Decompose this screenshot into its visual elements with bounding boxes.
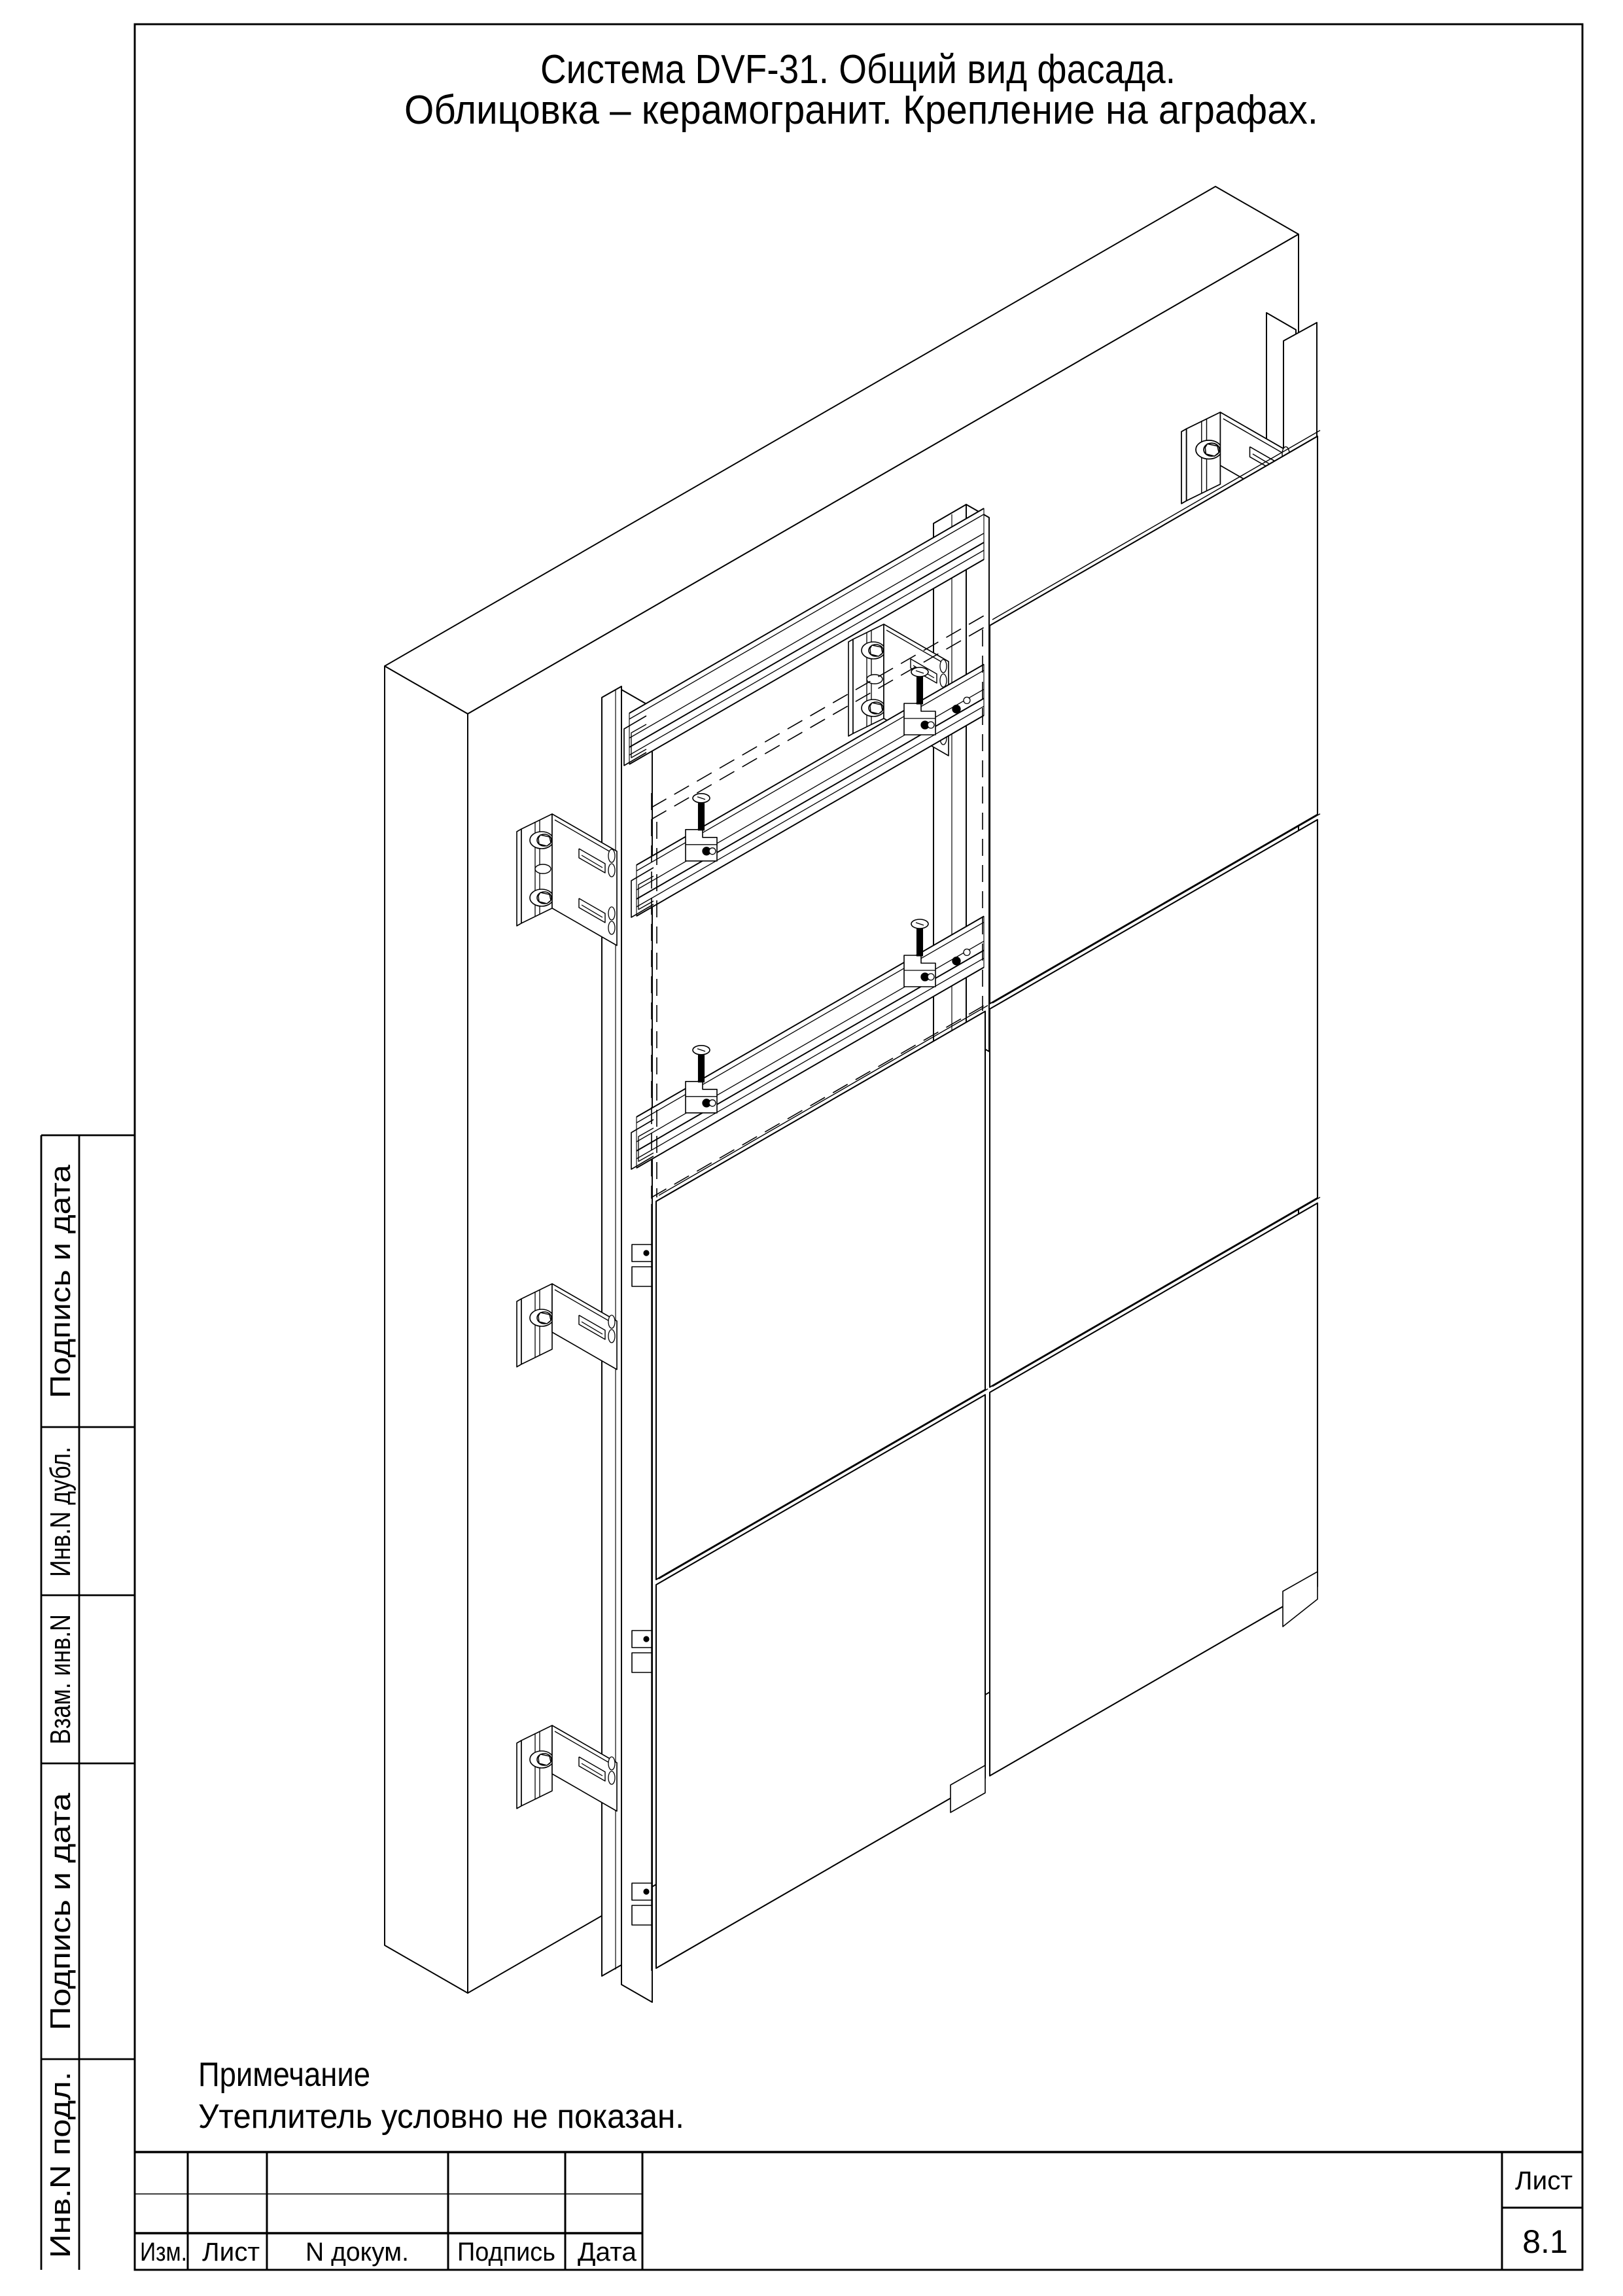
svg-text:Инв.N дубл.: Инв.N дубл. [44,1447,77,1577]
svg-text:Изм.: Изм. [140,2238,187,2267]
svg-text:Инв.N подл.: Инв.N подл. [44,2072,77,2258]
svg-text:Облицовка – керамогранит. Креп: Облицовка – керамогранит. Крепление на а… [404,88,1318,133]
svg-text:Лист: Лист [202,2238,260,2267]
svg-text:Утеплитель условно не показан.: Утеплитель условно не показан. [198,2098,684,2136]
svg-text:Система DVF-31. Общий вид фаса: Система DVF-31. Общий вид фасада. [540,47,1176,92]
svg-text:Подпись и дата: Подпись и дата [44,1792,77,2030]
svg-text:Примечание: Примечание [198,2056,370,2094]
svg-text:Дата: Дата [578,2238,637,2267]
svg-text:Взам. инв.N: Взам. инв.N [44,1614,77,1744]
svg-text:N докум.: N докум. [305,2238,409,2267]
svg-text:8.1: 8.1 [1522,2223,1568,2260]
svg-text:Подпись и дата: Подпись и дата [44,1164,77,1398]
svg-text:Подпись: Подпись [457,2238,555,2267]
svg-text:Лист: Лист [1515,2166,1573,2195]
